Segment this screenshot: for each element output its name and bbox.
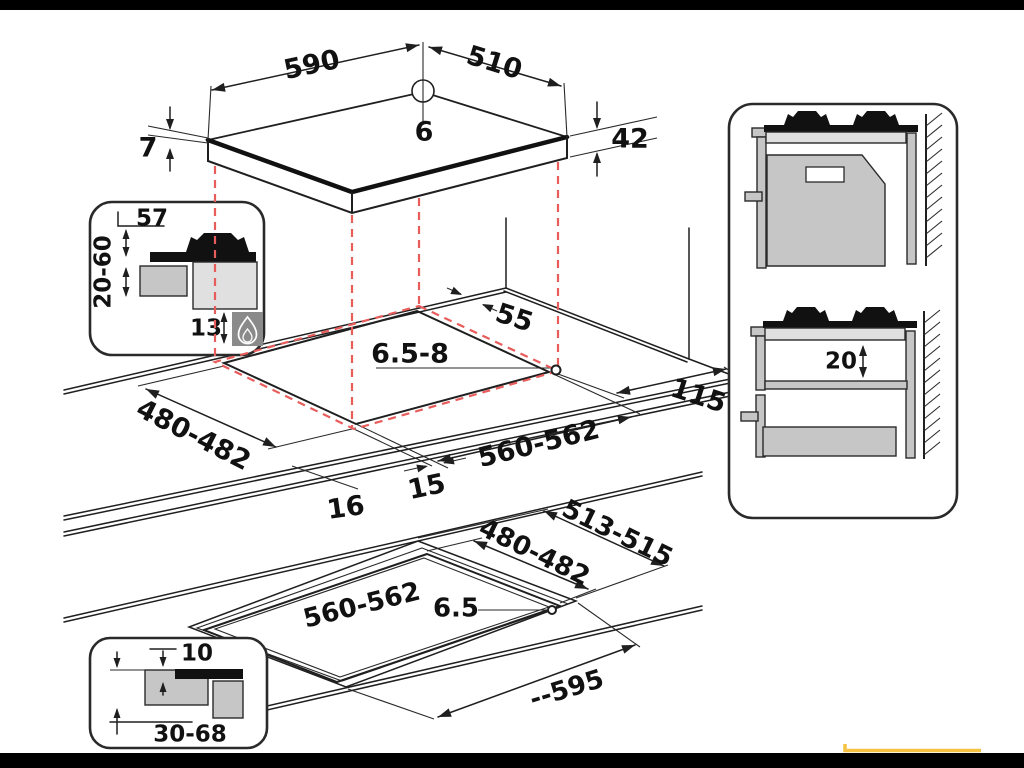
hob-top-face bbox=[208, 92, 567, 192]
letterbox-top bbox=[0, 0, 1024, 10]
dim-label-cutout-depth: 480-482 bbox=[131, 393, 256, 477]
drawer-side bbox=[763, 427, 896, 456]
hob-glass-side bbox=[764, 125, 918, 132]
hob-glass-side bbox=[763, 321, 917, 328]
worktop-side bbox=[765, 328, 905, 340]
dim-label-depth: 510 bbox=[463, 40, 526, 86]
dim-label-body-height: 42 bbox=[611, 124, 649, 155]
dim-label-worktop-thickness: 30-68 bbox=[153, 722, 227, 748]
fixing-hole bbox=[552, 366, 561, 375]
wall-corner-lines bbox=[506, 218, 689, 359]
top-view: 590 510 6 7 42 bbox=[139, 40, 657, 213]
dim-label-side-clearance: 115 bbox=[667, 373, 730, 420]
cabinet-section bbox=[140, 266, 187, 296]
burner-clearance-inset: 57 20-60 13 bbox=[90, 202, 264, 355]
projection-lines bbox=[215, 162, 561, 429]
hob-body-section bbox=[213, 681, 243, 718]
hob-glass-section bbox=[175, 669, 243, 679]
dim-label-hole: 6.5 bbox=[433, 594, 479, 624]
dim-label-hole-diameter: 6.5-8 bbox=[371, 339, 449, 370]
hob-installation-diagram-page: 480-482 560-562 15 16 55 6.5-8 115 57 20… bbox=[0, 0, 1024, 768]
gas-inlet bbox=[745, 192, 762, 201]
wall-side-view-panel: 20 bbox=[729, 104, 957, 518]
dim-label-hole: 6 bbox=[415, 117, 434, 148]
dim-label-front-overhang: 15 bbox=[405, 468, 448, 506]
burner-body-section bbox=[193, 262, 257, 309]
dim-label-rear-clearance: 55 bbox=[492, 298, 537, 339]
side-view-over-oven bbox=[745, 111, 942, 268]
dim-label-recess-width: --595 bbox=[526, 664, 607, 715]
highlight-marker bbox=[845, 744, 981, 751]
dim-label-side-overhang: 16 bbox=[325, 490, 367, 526]
shelf-side bbox=[765, 381, 907, 389]
letterbox-bottom bbox=[0, 753, 1024, 768]
worktop-side bbox=[766, 132, 906, 143]
fixing-hole bbox=[548, 606, 556, 614]
dim-label-glass-thickness: 7 bbox=[139, 133, 158, 164]
dim-label-shelf-clearance: 20 bbox=[825, 349, 857, 375]
oven-vent bbox=[806, 167, 844, 182]
installation-diagram: 480-482 560-562 15 16 55 6.5-8 115 57 20… bbox=[0, 0, 1024, 768]
dim-label-top-clearance: 57 bbox=[136, 206, 168, 232]
hob-glass-section bbox=[150, 252, 256, 262]
dim-label-width: 590 bbox=[281, 44, 343, 86]
dim-label-step-depth: 10 bbox=[181, 641, 213, 667]
dim-label-cabinet-distance: 20-60 bbox=[91, 235, 117, 309]
dim-label-bottom-clearance: 13 bbox=[190, 316, 222, 342]
flush-detail-inset: 10 30-68 bbox=[90, 638, 267, 748]
gas-inlet bbox=[741, 412, 758, 421]
